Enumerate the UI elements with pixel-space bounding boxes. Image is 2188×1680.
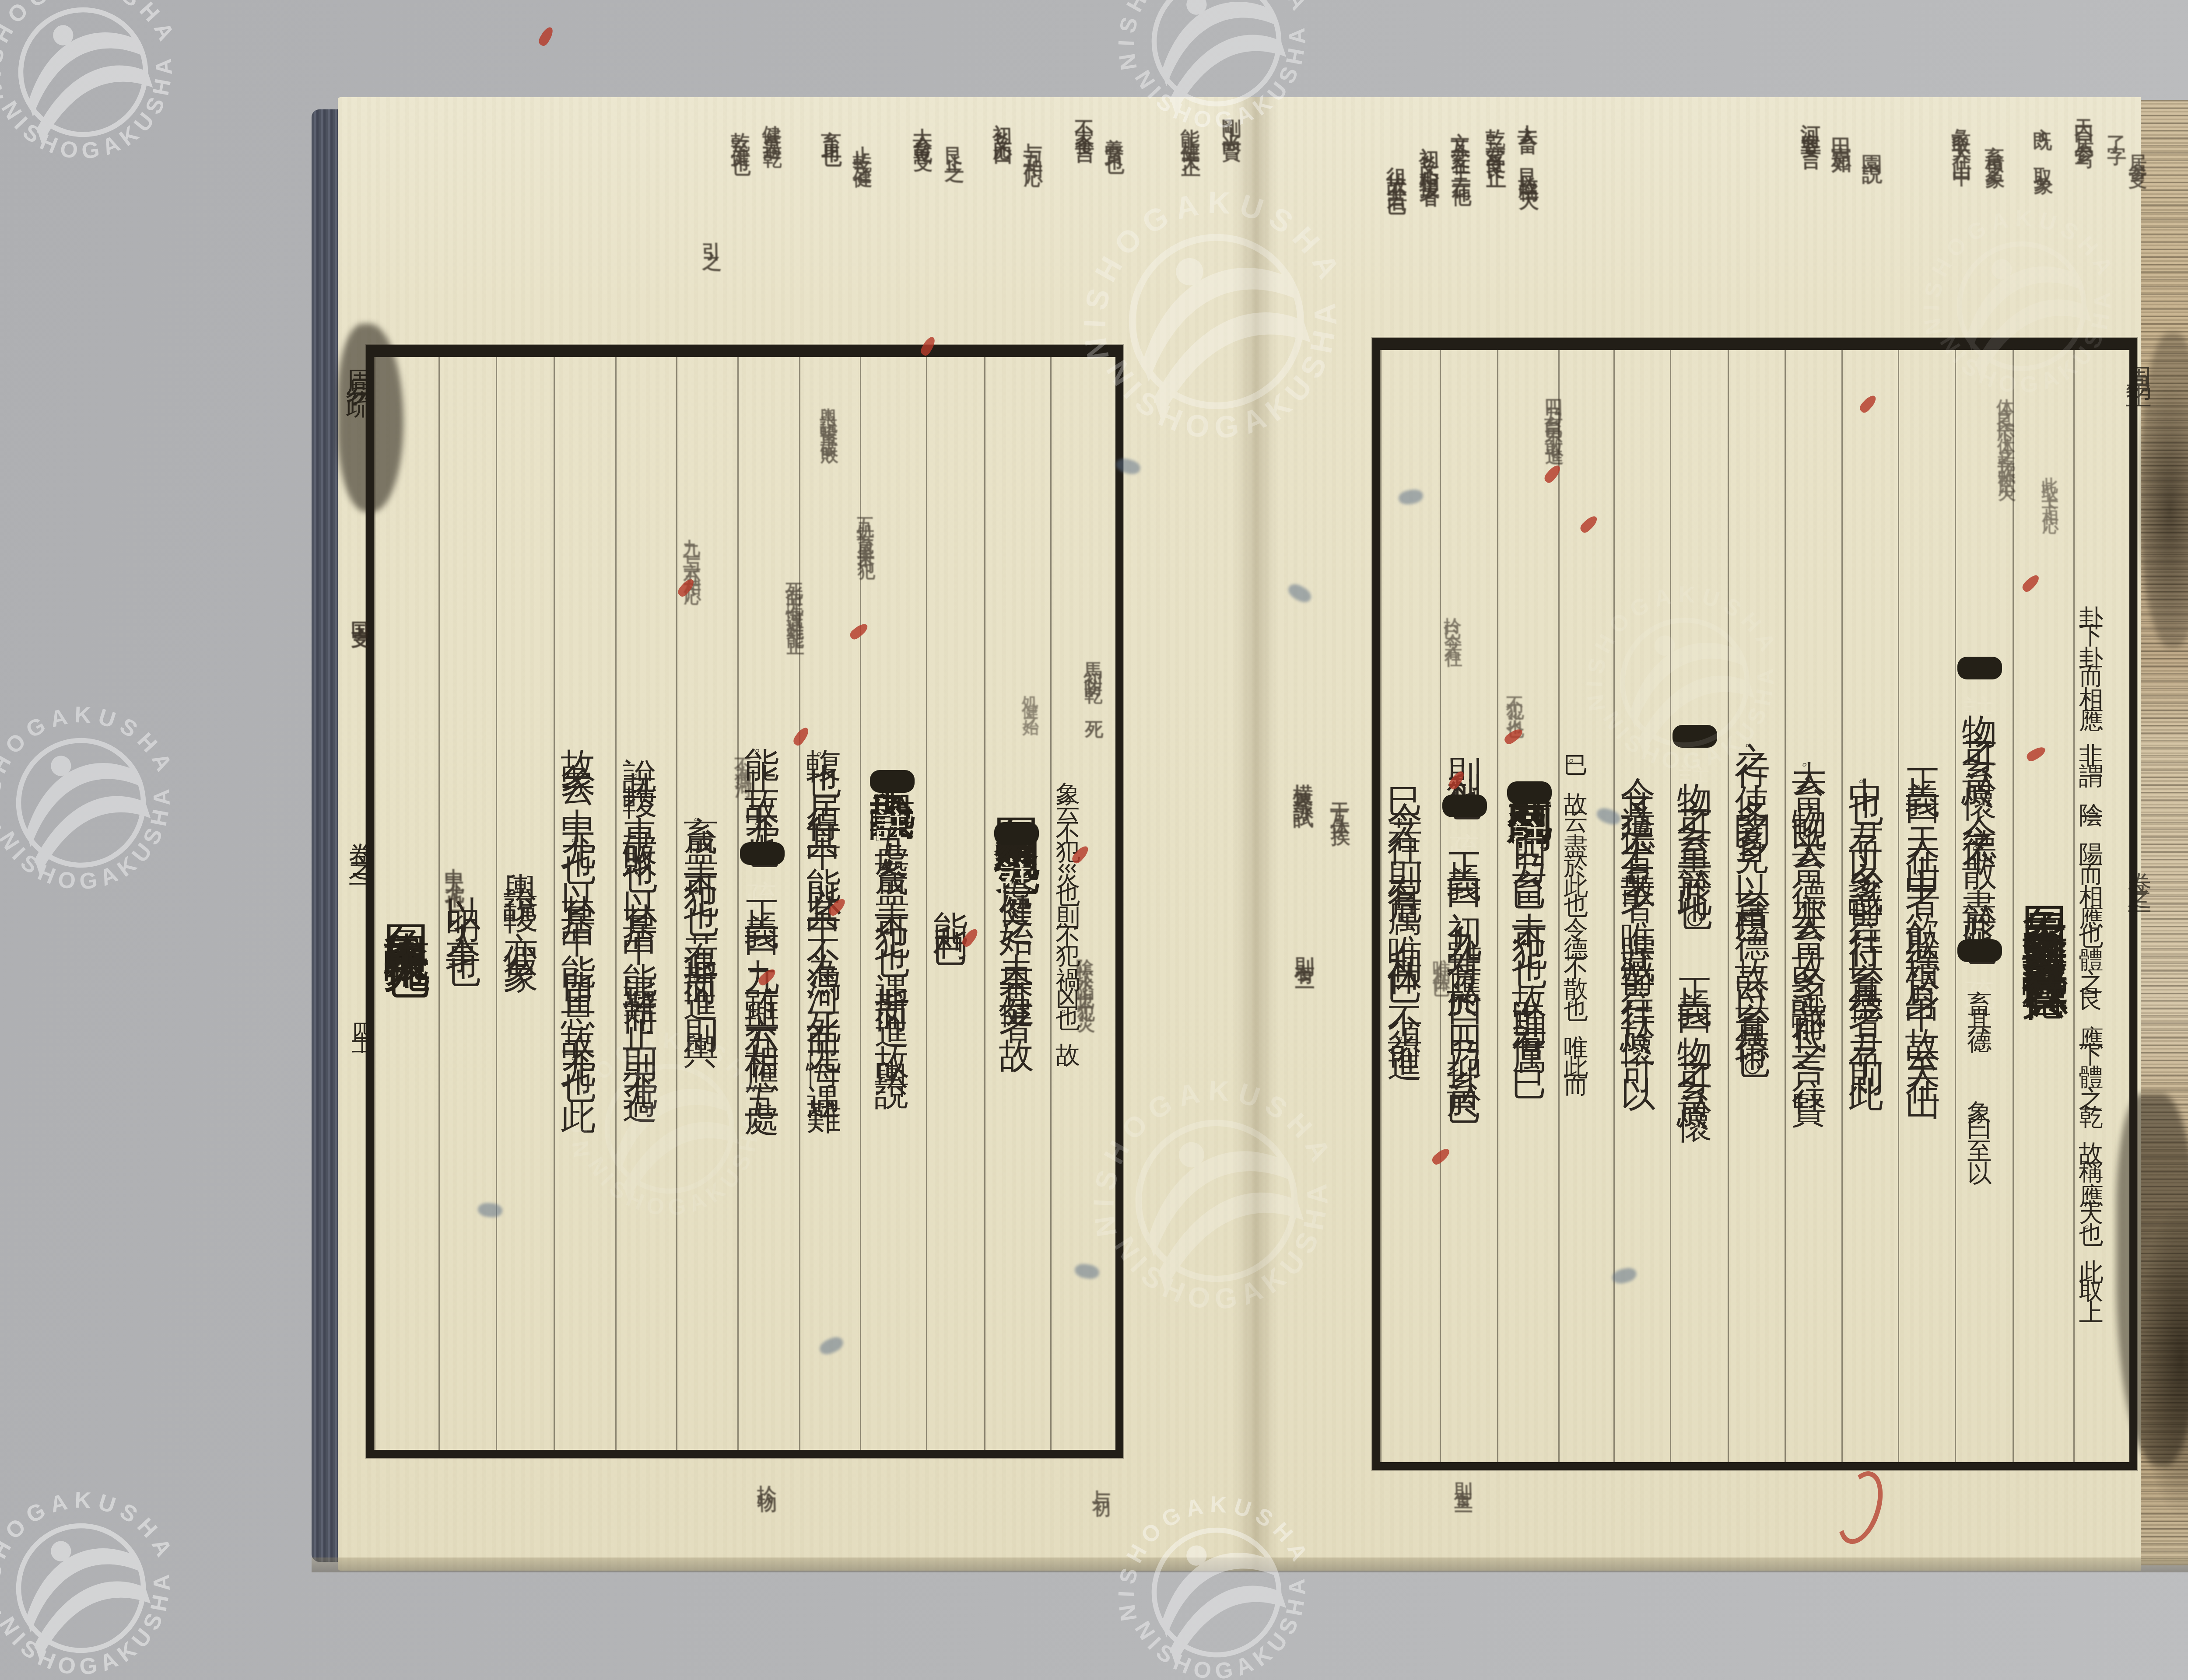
right-text-column-1: 體之艮。應下體之乾。故稱應天也。此取上卦下卦而相應。非謂一陰一陽而相應也 [2073, 350, 2129, 1462]
punctuation-circle: 。 [1520, 868, 1539, 885]
column-text: 初九有厲利巳註四乃畜巳。未可犯也。故進則有厲。巳 [1498, 754, 1558, 1058]
main-classic-text: 象曰有厲利巳不犯災也 [991, 781, 1042, 816]
punctuation-circle: 。 [1629, 875, 1648, 892]
left-text-column-7: 畜盛。未可犯也。若遇斯而進。則輿 [676, 357, 737, 1450]
punctuation-circle: 。 [1396, 817, 1414, 833]
punctuation-circle: 。 [1455, 982, 1474, 998]
punctuation-circle: 。 [1800, 761, 1819, 777]
punctuation-circle: 。 [569, 764, 588, 780]
punctuation-circle: 。 [1567, 998, 1585, 1015]
punctuation-circle: 。 [753, 747, 771, 763]
right-text-column-4: 正義曰。天在山中者。欲取德積於身中。故云天在山 [1898, 350, 1955, 1462]
nishogakusha-watermark: NISHOGAKUSHANISHOGAKUSHA [0, 0, 227, 216]
punctuation-circle: 。 [1743, 742, 1762, 758]
commentary-text: 中也。君子以多識前言往行以畜其德者。君子則此 [1847, 749, 1886, 1063]
punctuation-circle: 。 [569, 982, 588, 998]
punctuation-circle: 。 [883, 1002, 901, 1018]
punctuation-circle: 。 [1800, 833, 1819, 850]
commentary-text: 說其輹。車破敗也。以其居中。能遇難而止。則无尤過 [621, 730, 659, 1077]
nishogakusha-watermark: NISHOGAKUSHANISHOGAKUSHA [0, 659, 224, 946]
double-small-columns: 體之艮。應下體之乾。故稱應天也。此取上卦下卦而相應。非謂一陰一陽而相應也 [2075, 586, 2108, 1300]
column-text: 象曰輿說輹中无尤也 [375, 888, 438, 919]
column-text: 則不犯禍凶也。故象云不犯災也 [1052, 763, 1085, 1044]
commentary-text: 則利也。 [1445, 730, 1484, 788]
punctuation-circle: 。 [1396, 889, 1414, 906]
punctuation-circle: 。 [753, 819, 771, 836]
punctuation-circle: 。 [1686, 993, 1704, 1009]
column-text: 巳今若往。則有危厲。唯利休巳。不須前進。 [1382, 761, 1429, 1051]
column-text: 輹也。居得其中。能以其中。不為馮河。死而无悔。遇難 [800, 722, 848, 1085]
punctuation-circle: 。 [2082, 1106, 2100, 1123]
punctuation-circle: 。 [1629, 1018, 1648, 1035]
punctuation-circle: 。 [1743, 1029, 1762, 1046]
center-gutter-shadow [1233, 97, 1277, 1571]
commentary-label-shu: 疏 [1442, 794, 1487, 817]
column-text: 註物之可畜至盡於此也。○正義曰。物之可畜於懷 [1671, 719, 1718, 1093]
punctuation-circle: 。 [1743, 828, 1762, 845]
commentary-label-zhu: 註 [1507, 781, 1552, 804]
main-classic-text: 象曰輿說輹中无尤也 [381, 888, 432, 919]
left-page-edge-stack [312, 109, 339, 1562]
punctuation-circle: 。 [1971, 844, 1989, 861]
nishogakusha-watermark: NISHOGAKUSHANISHOGAKUSHA [0, 1445, 224, 1680]
double-small-columns: 象曰至以畜其德○ [1963, 970, 1996, 1162]
column-text: 令德不散也。唯此而巳。故云盡於此也 [1560, 737, 1593, 1075]
punctuation-circle: 。 [1914, 984, 1932, 1001]
right-text-column-6: 大畜。物既大畜。德亦大畜。故多記識前代之言。往賢 [1785, 350, 1841, 1462]
punctuation-circle: 。 [815, 968, 833, 984]
double-small-columns: 令德不散也。唯此而巳。故云盡於此也 [1560, 737, 1593, 1075]
column-text: 體之艮。應下體之乾。故稱應天也。此取上卦下卦而相應。非謂一陰一陽而相應也 [2075, 512, 2108, 1300]
commentary-text: 處健之始。未果其健者。故 [997, 853, 1036, 1026]
punctuation-circle: 。 [1800, 1035, 1819, 1051]
right-text-column-12: 則利也。疏正義曰。初九雖有應於四。四乃抑畜於巳 [1440, 350, 1497, 1462]
punctuation-circle: 。 [1396, 962, 1414, 979]
small-sub-column: 卦下卦而相應。非謂一陰一陽而相應也 [2075, 586, 2108, 925]
commentary-text: 故象云。中无尤也。以其居中。能自止息。故无尤也。此 [559, 722, 598, 1085]
punctuation-circle: 。 [2082, 989, 2100, 1005]
small-sub-column: 體之艮。應下體之乾。故稱應天也。此取上 [2075, 928, 2108, 1300]
punctuation-circle: 。 [692, 815, 710, 832]
punctuation-circle: 。 [753, 915, 771, 931]
main-classic-text: 象曰天在山中大畜君子以多識前言往行以畜其德 [2020, 869, 2071, 943]
column-text: 之行。使多聞多見。以畜積巳德。故云以畜其德也。○ [1729, 714, 1776, 1099]
punctuation-circle: 。 [883, 929, 901, 946]
punctuation-circle: 。 [1396, 1035, 1414, 1051]
commentary-text: 輹也。居得其中。能以其中。不為馮河。死而无悔。遇難 [805, 722, 843, 1085]
main-classic-text: 九二輿說輹 [867, 746, 918, 764]
punctuation-circle: 。 [883, 857, 901, 873]
left-text-column-10: 輿說輹。亦假象。 [496, 357, 553, 1450]
punctuation-circle: 。 [1914, 783, 1932, 800]
commentary-label-zhu: 註 [1673, 725, 1717, 748]
svg-text:NISHOGAKUSHA: NISHOGAKUSHA [0, 46, 201, 188]
column-text: 象曰天在山中大畜君子以多識前言往行以畜其德 [2014, 869, 2073, 943]
punctuation-circle: 。 [1686, 882, 1704, 898]
punctuation-circle: 。 [815, 822, 833, 839]
right-text-column-3: 註物之可畜於懷。令德不散。盡於此也。疏象曰至以畜其德○ [1955, 350, 2013, 1462]
commentary-text: 能利巳 [932, 882, 970, 924]
column-text: 則利也。疏正義曰。初九雖有應於四。四乃抑畜於巳 [1441, 730, 1488, 1082]
column-text: 故象云。中无尤也。以其居中。能自止息。故无尤也。此 [555, 722, 602, 1085]
left-text-column-2: 象曰有厲利巳不犯災也註處健之始。未果其健者。故 [984, 357, 1050, 1450]
right-text-column-11: 初九有厲利巳註四乃畜巳。未可犯也。故進則有厲。巳 [1497, 350, 1558, 1462]
small-sub-column: 象曰至以 [1963, 1081, 1996, 1162]
punctuation-circle: 。 [2082, 707, 2100, 724]
punctuation-circle: 。 [2082, 1223, 2100, 1240]
punctuation-circle: 。 [1914, 870, 1932, 886]
commentary-text: 正義曰。九二雖與六五相應。五處 [743, 873, 782, 1088]
svg-text:NISHOGAKUSHA: NISHOGAKUSHA [0, 674, 181, 837]
commentary-text: 物之可畜至盡於此也。○正義曰。物之可畜於懷 [1676, 756, 1714, 1093]
right-text-column-9: 令其道德不有棄散者。唯貯藏前言往行於懷。可以 [1613, 350, 1670, 1462]
punctuation-circle: 。 [1857, 777, 1876, 794]
commentary-label-shu: 疏 [740, 842, 785, 865]
right-text-column-7: 之行。使多聞多見。以畜積巳德。故云以畜其德也。○ [1728, 350, 1785, 1462]
paper-bottom-edge [312, 1557, 2188, 1572]
punctuation-circle: 。 [1567, 757, 1585, 773]
column-text: 九二輿說輹註五處畜盛。未可犯也。遇斯而進。故輿說 [861, 746, 924, 1060]
column-text: 中也。君子以多識前言往行以畜其德者。君子則此 [1843, 749, 1890, 1063]
punctuation-circle: 。 [1007, 995, 1026, 1012]
commentary-label-zhu: 註 [870, 770, 915, 793]
punctuation-circle: 。 [753, 1043, 771, 1060]
svg-text:NISHOGAKUSHA: NISHOGAKUSHA [0, 1459, 181, 1622]
right-text-column-2: 象曰天在山中大畜君子以多識前言往行以畜其德 [2013, 350, 2073, 1462]
punctuation-circle: 。 [569, 836, 588, 853]
punctuation-circle: 。 [1800, 906, 1819, 923]
left-text-frame: 則不犯禍凶也。故象云不犯災也象曰有厲利巳不犯災也註處健之始。未果其健者。故能利巳… [366, 345, 1123, 1458]
punctuation-circle: 。 [512, 887, 530, 903]
left-text-column-6: 能止。故无尤也。疏正義曰。九二雖與六五相應。五處 [737, 357, 799, 1450]
punctuation-circle: 。 [631, 1004, 649, 1021]
svg-text:NISHOGAKUSHA: NISHOGAKUSHA [1128, 1566, 1334, 1680]
column-text: 象曰有厲利巳不犯災也註處健之始。未果其健者。故 [985, 781, 1048, 1026]
left-text-column-4: 九二輿說輹註五處畜盛。未可犯也。遇斯而進。故輿說 [860, 357, 926, 1450]
book-scan-stage: 周易疏 卷之三 四十二 周易正 卷之三 則不犯禍凶也。故象云不犯災也象曰有厲利巳… [0, 0, 2188, 1680]
double-small-columns: 則不犯禍凶也。故象云不犯災也 [1052, 763, 1085, 1044]
punctuation-circle: 。 [512, 945, 530, 962]
column-text: 大畜。物既大畜。德亦大畜。故多記識前代之言。往賢 [1786, 733, 1833, 1079]
commentary-text: 巳今若往。則有危厲。唯利休巳。不須前進。 [1386, 761, 1424, 1051]
punctuation-circle: 。 [815, 750, 833, 766]
punctuation-circle: 。 [631, 772, 649, 789]
punctuation-circle: 。 [1971, 771, 1989, 788]
left-text-column-1: 則不犯禍凶也。故象云不犯災也 [1050, 357, 1115, 1450]
ink-wear-smudge [2140, 332, 2188, 647]
punctuation-circle: 。 [569, 909, 588, 926]
left-text-column-11: 以明人事也 [438, 357, 496, 1450]
svg-text:NISHOGAKUSHA: NISHOGAKUSHA [0, 0, 183, 106]
punctuation-circle: 。 [692, 888, 710, 905]
commentary-text: 大畜。物既大畜。德亦大畜。故多記識前代之言。往賢 [1790, 733, 1829, 1079]
column-text: 正義曰。天在山中者。欲取德積於身中。故云天在山 [1899, 741, 1946, 1071]
small-sub-column: 令德不散也。唯此而 [1560, 898, 1593, 1075]
left-text-column-12: 象曰輿說輹中无尤也 [374, 357, 438, 1450]
commentary-label-shu: 疏 [1957, 939, 2002, 962]
right-text-frame: 體之艮。應下體之乾。故稱應天也。此取上卦下卦而相應。非謂一陰一陽而相應也象曰天在… [1372, 338, 2137, 1470]
small-sub-column: 象云不犯災也 [1052, 763, 1085, 883]
column-text: 說其輹。車破敗也。以其居中。能遇難而止。則无尤過 [617, 730, 664, 1077]
punctuation-circle: 。 [815, 895, 833, 912]
column-text: 輿說輹。亦假象。 [497, 845, 544, 962]
svg-text:NISHOGAKUSHA: NISHOGAKUSHA [0, 777, 199, 919]
column-text: 能止。故无尤也。疏正義曰。九二雖與六五相應。五處 [739, 719, 786, 1088]
column-text: 畜盛。未可犯也。若遇斯而進。則輿 [677, 787, 725, 1019]
column-text: 令其道德不有棄散者。唯貯藏前言往行於懷。可以 [1615, 749, 1662, 1063]
small-sub-column: 則不犯禍凶也。故 [1052, 887, 1085, 1044]
commentary-text: 正義曰。天在山中者。欲取德積於身中。故云天在山 [1904, 741, 1942, 1071]
commentary-text: 五處畜盛。未可犯也。遇斯而進。故輿說 [873, 801, 912, 1060]
punctuation-circle: 。 [1971, 917, 1989, 933]
commentary-label-zhu: 註 [1957, 657, 2002, 679]
punctuation-circle: 。 [1455, 867, 1474, 884]
punctuation-circle: 。 [692, 975, 710, 991]
right-text-column-5: 中也。君子以多識前言往行以畜其德者。君子則此 [1841, 350, 1898, 1462]
punctuation-circle: 。 [569, 1054, 588, 1071]
right-text-column-13: 巳今若往。則有危厲。唯利休巳。不須前進。 [1380, 350, 1440, 1462]
punctuation-circle: 。 [631, 917, 649, 934]
svg-text:NISHOGAKUSHA: NISHOGAKUSHA [0, 1562, 199, 1680]
commentary-text: 四乃畜巳。未可犯也。故進則有厲。巳 [1510, 812, 1549, 1058]
punctuation-circle: 。 [1455, 772, 1474, 788]
punctuation-circle: 。 [1059, 1008, 1077, 1024]
commentary-text: 畜盛。未可犯也。若遇斯而進。則輿 [682, 787, 720, 1019]
punctuation-circle: 。 [631, 845, 649, 861]
column-text: 註物之可畜於懷。令德不散。盡於此也。疏象曰至以畜其德○ [1956, 651, 2003, 1162]
punctuation-circle: 。 [815, 1040, 833, 1057]
left-text-column-5: 輹也。居得其中。能以其中。不為馮河。死而无悔。遇難 [799, 357, 860, 1450]
punctuation-circle: 。 [1520, 941, 1539, 957]
commentary-text: 能止。故无尤也。 [743, 719, 782, 836]
main-classic-text: 初九有厲利巳 [1504, 754, 1555, 775]
commentary-text: 輿說輹。亦假象。 [501, 845, 540, 962]
left-text-column-3: 能利巳 [926, 357, 984, 1450]
punctuation-circle: 。 [1520, 1027, 1539, 1044]
commentary-text: 以明人事也 [444, 868, 483, 938]
commentary-text: 令其道德不有棄散者。唯貯藏前言往行於懷。可以 [1619, 749, 1658, 1063]
column-text: 以明人事也 [440, 868, 487, 938]
punctuation-circle: 。 [1007, 909, 1026, 925]
commentary-text: 之行。使多聞多見。以畜積巳德。故云以畜其德也。○ [1733, 714, 1772, 1099]
commentary-text: 物之可畜於懷。令德不散。盡於此也。 [1960, 687, 1999, 933]
left-text-column-9: 故象云。中无尤也。以其居中。能自止息。故无尤也。此 [554, 357, 615, 1450]
right-text-column-8: 註物之可畜至盡於此也。○正義曰。物之可畜於懷 [1670, 350, 1728, 1462]
red-reading-mark [537, 25, 555, 48]
svg-text:NISHOGAKUSHA: NISHOGAKUSHA [1086, 0, 1316, 76]
small-sub-column: 畜其德○ [1963, 970, 1996, 1078]
left-text-column-8: 說其輹。車破敗也。以其居中。能遇難而止。則无尤過 [615, 357, 676, 1450]
small-sub-column: 巳。故云盡於此也 [1560, 737, 1593, 894]
punctuation-circle: 。 [1857, 990, 1876, 1007]
column-text: 能利巳 [927, 882, 975, 924]
punctuation-circle: 。 [1743, 915, 1762, 931]
commentary-text: 正義曰。初九雖有應於四。四乃抑畜於巳 [1445, 825, 1484, 1082]
commentary-label-zhu: 註 [994, 822, 1039, 845]
right-text-column-10: 令德不散也。唯此而巳。故云盡於此也 [1558, 350, 1613, 1462]
spacer [2090, 512, 2093, 586]
